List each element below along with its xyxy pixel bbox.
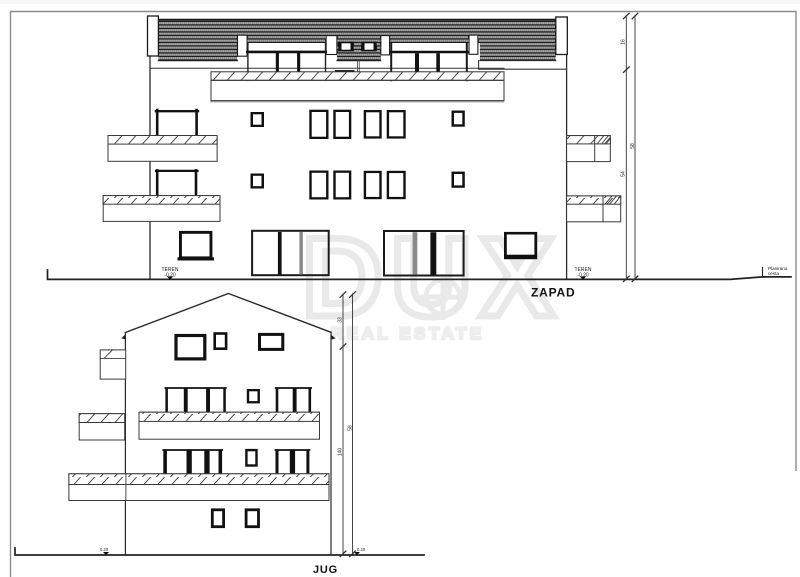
svg-text:ZAPAD: ZAPAD — [531, 286, 575, 300]
svg-text:58: 58 — [347, 425, 353, 431]
svg-text:-0.20: -0.20 — [577, 273, 589, 279]
svg-text:58: 58 — [630, 143, 636, 149]
svg-text:REAL ESTATE: REAL ESTATE — [331, 324, 485, 343]
svg-text:140: 140 — [337, 448, 343, 457]
svg-text:0.20: 0.20 — [357, 547, 366, 552]
svg-text:JUG: JUG — [313, 564, 338, 576]
svg-text:54: 54 — [621, 171, 627, 177]
svg-text:cesta: cesta — [768, 271, 779, 276]
svg-text:16: 16 — [621, 39, 627, 45]
svg-text:0.20: 0.20 — [100, 547, 109, 552]
svg-text:33: 33 — [337, 317, 343, 323]
svg-text:-0.20: -0.20 — [164, 273, 176, 279]
